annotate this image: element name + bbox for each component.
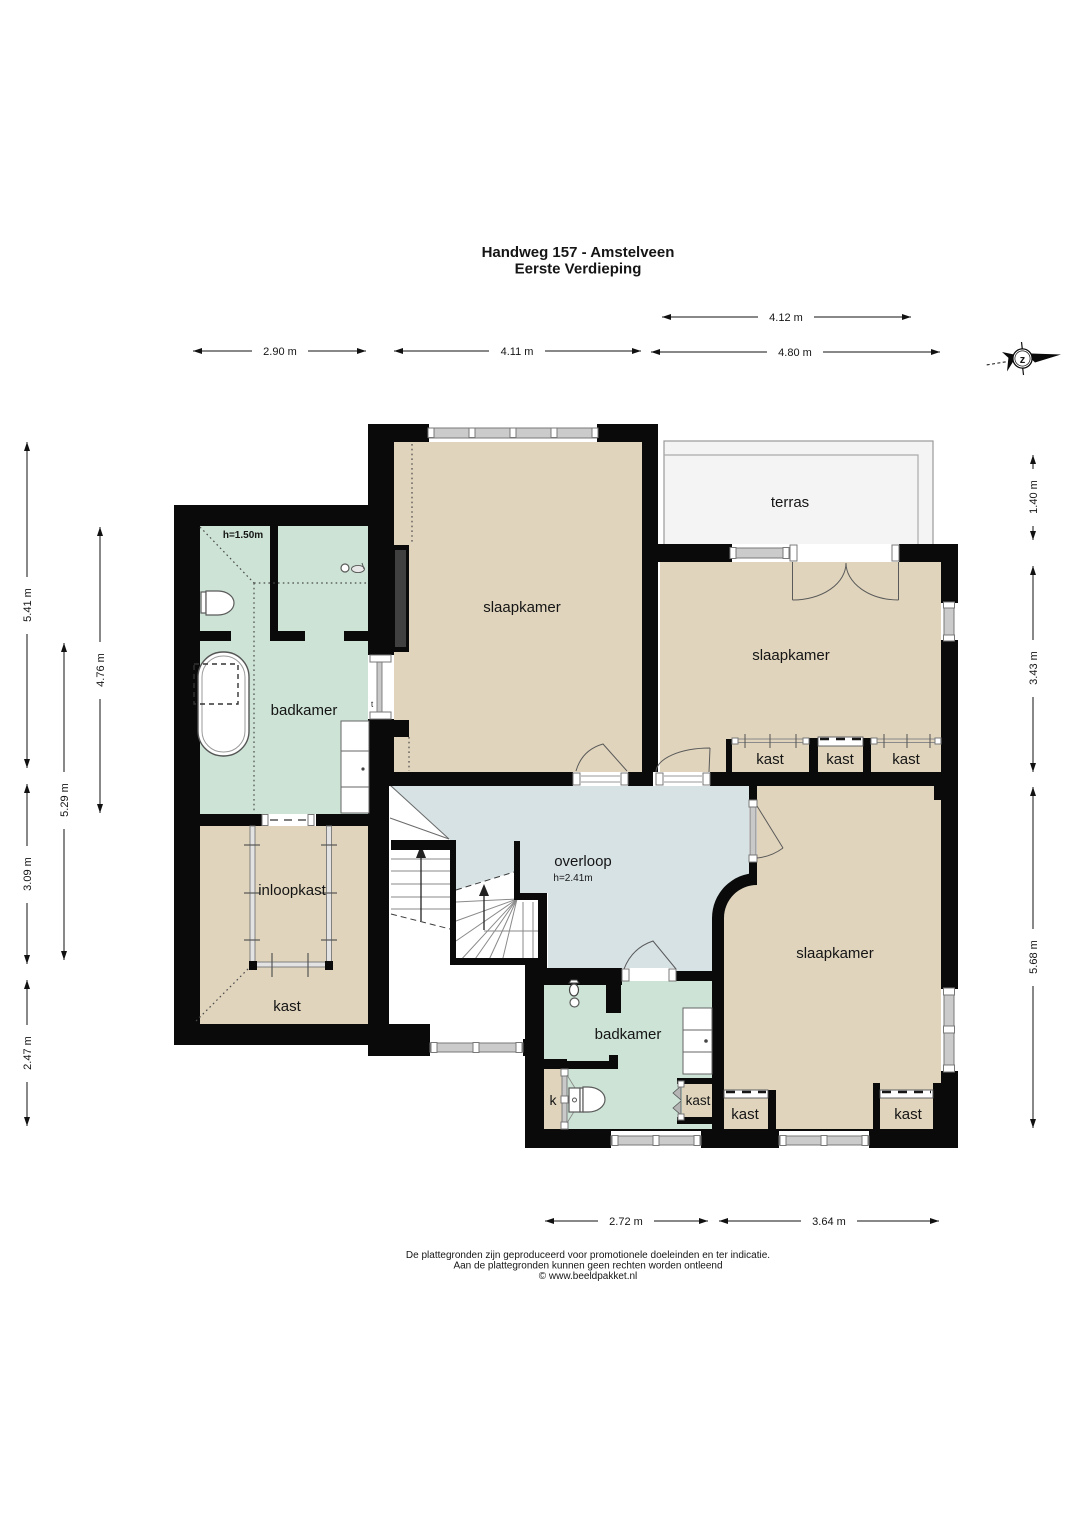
svg-text:badkamer: badkamer: [271, 702, 338, 719]
svg-text:h=2.41m: h=2.41m: [553, 873, 592, 884]
svg-text:3.64 m: 3.64 m: [812, 1216, 846, 1228]
svg-text:kast: kast: [273, 998, 301, 1015]
svg-text:2.47 m: 2.47 m: [22, 1036, 34, 1070]
svg-text:slaapkamer: slaapkamer: [483, 599, 561, 616]
svg-text:5.29 m: 5.29 m: [59, 783, 71, 817]
svg-text:terras: terras: [771, 494, 809, 511]
svg-text:kast: kast: [731, 1106, 759, 1123]
svg-text:3.43 m: 3.43 m: [1028, 651, 1040, 685]
svg-text:badkamer: badkamer: [595, 1026, 662, 1043]
svg-text:overloop: overloop: [554, 853, 612, 870]
svg-text:© www.beeldpakket.nl: © www.beeldpakket.nl: [539, 1271, 638, 1282]
svg-text:inloopkast: inloopkast: [258, 882, 326, 899]
svg-text:k: k: [550, 1092, 558, 1108]
svg-text:Handweg 157 - Amstelveen: Handweg 157 - Amstelveen: [482, 244, 675, 261]
svg-text:De plattegronden zijn geproduc: De plattegronden zijn geproduceerd voor …: [406, 1250, 770, 1261]
svg-text:Eerste Verdieping: Eerste Verdieping: [515, 261, 642, 278]
svg-text:4.76 m: 4.76 m: [95, 653, 107, 687]
svg-text:kast: kast: [894, 1106, 922, 1123]
svg-text:kast: kast: [892, 751, 920, 768]
svg-text:4.80 m: 4.80 m: [778, 347, 812, 359]
svg-text:kast: kast: [756, 751, 784, 768]
svg-text:slaapkamer: slaapkamer: [752, 647, 830, 664]
svg-text:2.72 m: 2.72 m: [609, 1216, 643, 1228]
svg-text:5.68 m: 5.68 m: [1028, 940, 1040, 974]
svg-text:3.09 m: 3.09 m: [22, 857, 34, 891]
svg-text:h=1.50m: h=1.50m: [223, 530, 263, 541]
svg-text:Aan de plattegronden kunnen ge: Aan de plattegronden kunnen geen rechten…: [453, 1261, 722, 1272]
svg-text:slaapkamer: slaapkamer: [796, 945, 874, 962]
svg-text:kast: kast: [826, 751, 854, 768]
svg-text:z: z: [1020, 354, 1026, 366]
svg-text:2.90 m: 2.90 m: [263, 346, 297, 358]
svg-text:4.11 m: 4.11 m: [501, 346, 534, 358]
svg-text:kast: kast: [686, 1093, 711, 1108]
svg-text:4.12 m: 4.12 m: [769, 312, 803, 324]
svg-text:1.40 m: 1.40 m: [1028, 480, 1040, 514]
svg-text:5.41 m: 5.41 m: [22, 588, 34, 622]
